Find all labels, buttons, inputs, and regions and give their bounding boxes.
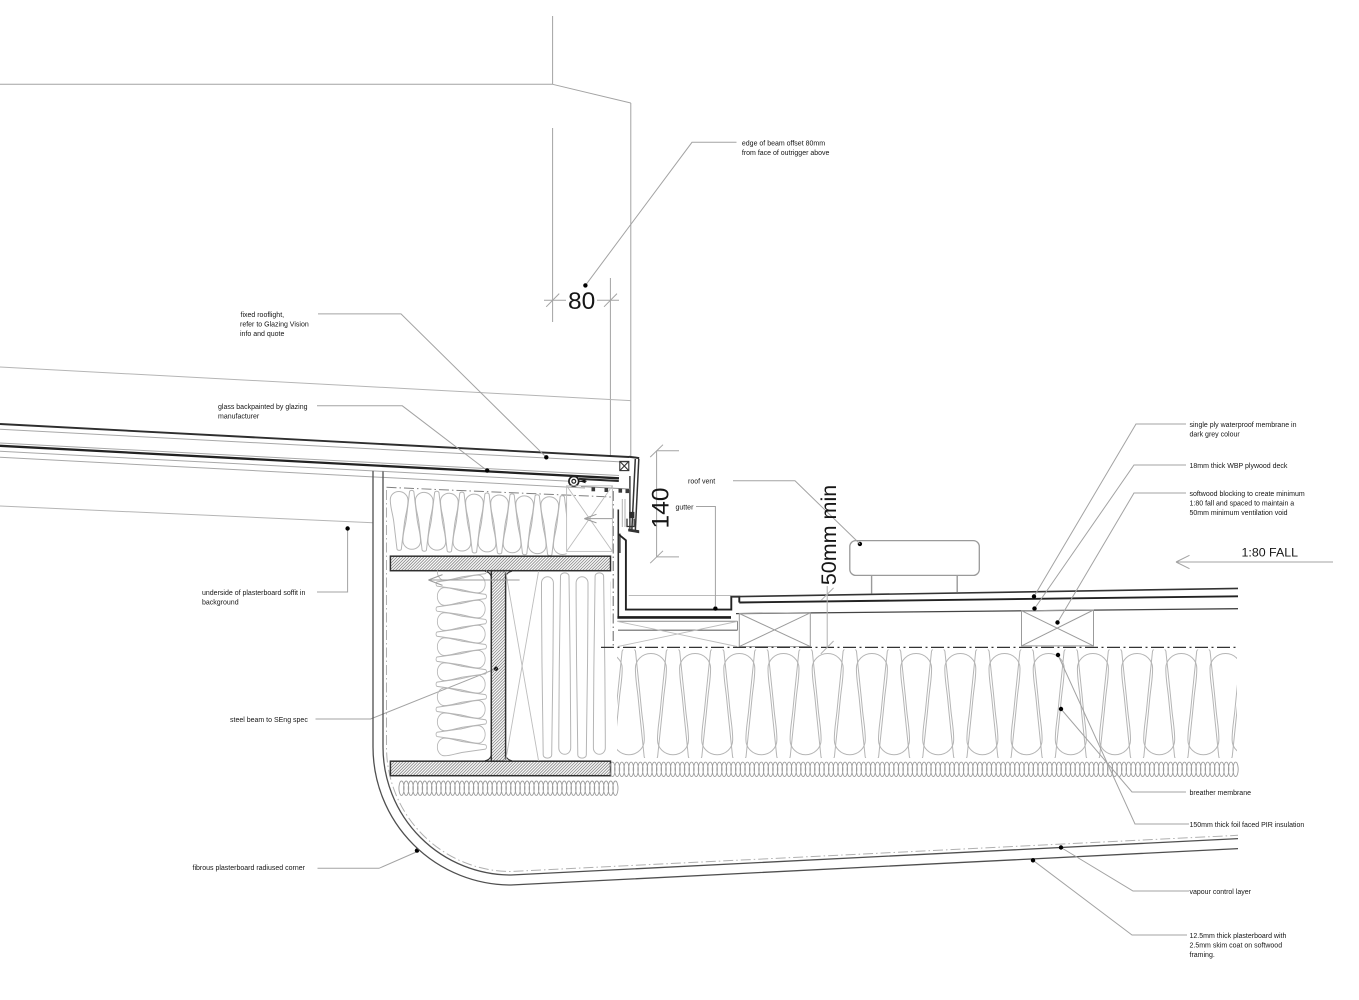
svg-text:breather membrane: breather membrane	[1190, 790, 1252, 797]
svg-text:1:80 fall and spaced to mainta: 1:80 fall and spaced to maintain a	[1190, 501, 1295, 508]
svg-text:framing.: framing.	[1190, 952, 1215, 959]
svg-text:roof vent: roof vent	[688, 479, 715, 486]
svg-text:from face of outrigger above: from face of outrigger above	[742, 150, 830, 157]
svg-text:50mm minimum ventilation void: 50mm minimum ventilation void	[1190, 510, 1288, 517]
svg-text:18mm thick WBP plywood deck: 18mm thick WBP plywood deck	[1190, 463, 1288, 470]
svg-text:fibrous plasterboard radiused: fibrous plasterboard radiused corner	[193, 865, 306, 872]
svg-text:1:80 FALL: 1:80 FALL	[1242, 546, 1299, 560]
svg-text:single ply waterproof membrane: single ply waterproof membrane in	[1190, 422, 1297, 429]
svg-text:manufacturer: manufacturer	[218, 413, 260, 420]
svg-text:2.5mm skim coat on softwood: 2.5mm skim coat on softwood	[1190, 943, 1283, 950]
svg-text:fixed rooflight,: fixed rooflight,	[241, 312, 285, 319]
svg-text:80: 80	[568, 288, 595, 315]
svg-text:12.5mm thick plasterboard with: 12.5mm thick plasterboard with	[1190, 933, 1287, 940]
svg-text:steel beam to SEng spec: steel beam to SEng spec	[230, 717, 308, 724]
svg-text:edge of beam offset 80mm: edge of beam offset 80mm	[742, 141, 825, 148]
svg-text:140: 140	[648, 488, 675, 529]
svg-text:underside of plasterboard soff: underside of plasterboard soffit in	[202, 590, 305, 597]
svg-text:glass backpainted by glazing: glass backpainted by glazing	[218, 404, 308, 411]
svg-text:background: background	[202, 600, 239, 607]
svg-text:refer to Glazing Vision: refer to Glazing Vision	[240, 321, 309, 328]
svg-text:dark grey colour: dark grey colour	[1190, 432, 1241, 439]
svg-text:softwood blocking to create mi: softwood blocking to create minimum	[1190, 491, 1305, 498]
svg-text:gutter: gutter	[676, 505, 695, 512]
svg-text:150mm thick foil faced PIR ins: 150mm thick foil faced PIR insulation	[1190, 822, 1305, 829]
svg-text:info and quote: info and quote	[240, 331, 284, 338]
svg-text:vapour control layer: vapour control layer	[1190, 889, 1252, 896]
svg-text:50mm min: 50mm min	[817, 485, 841, 585]
